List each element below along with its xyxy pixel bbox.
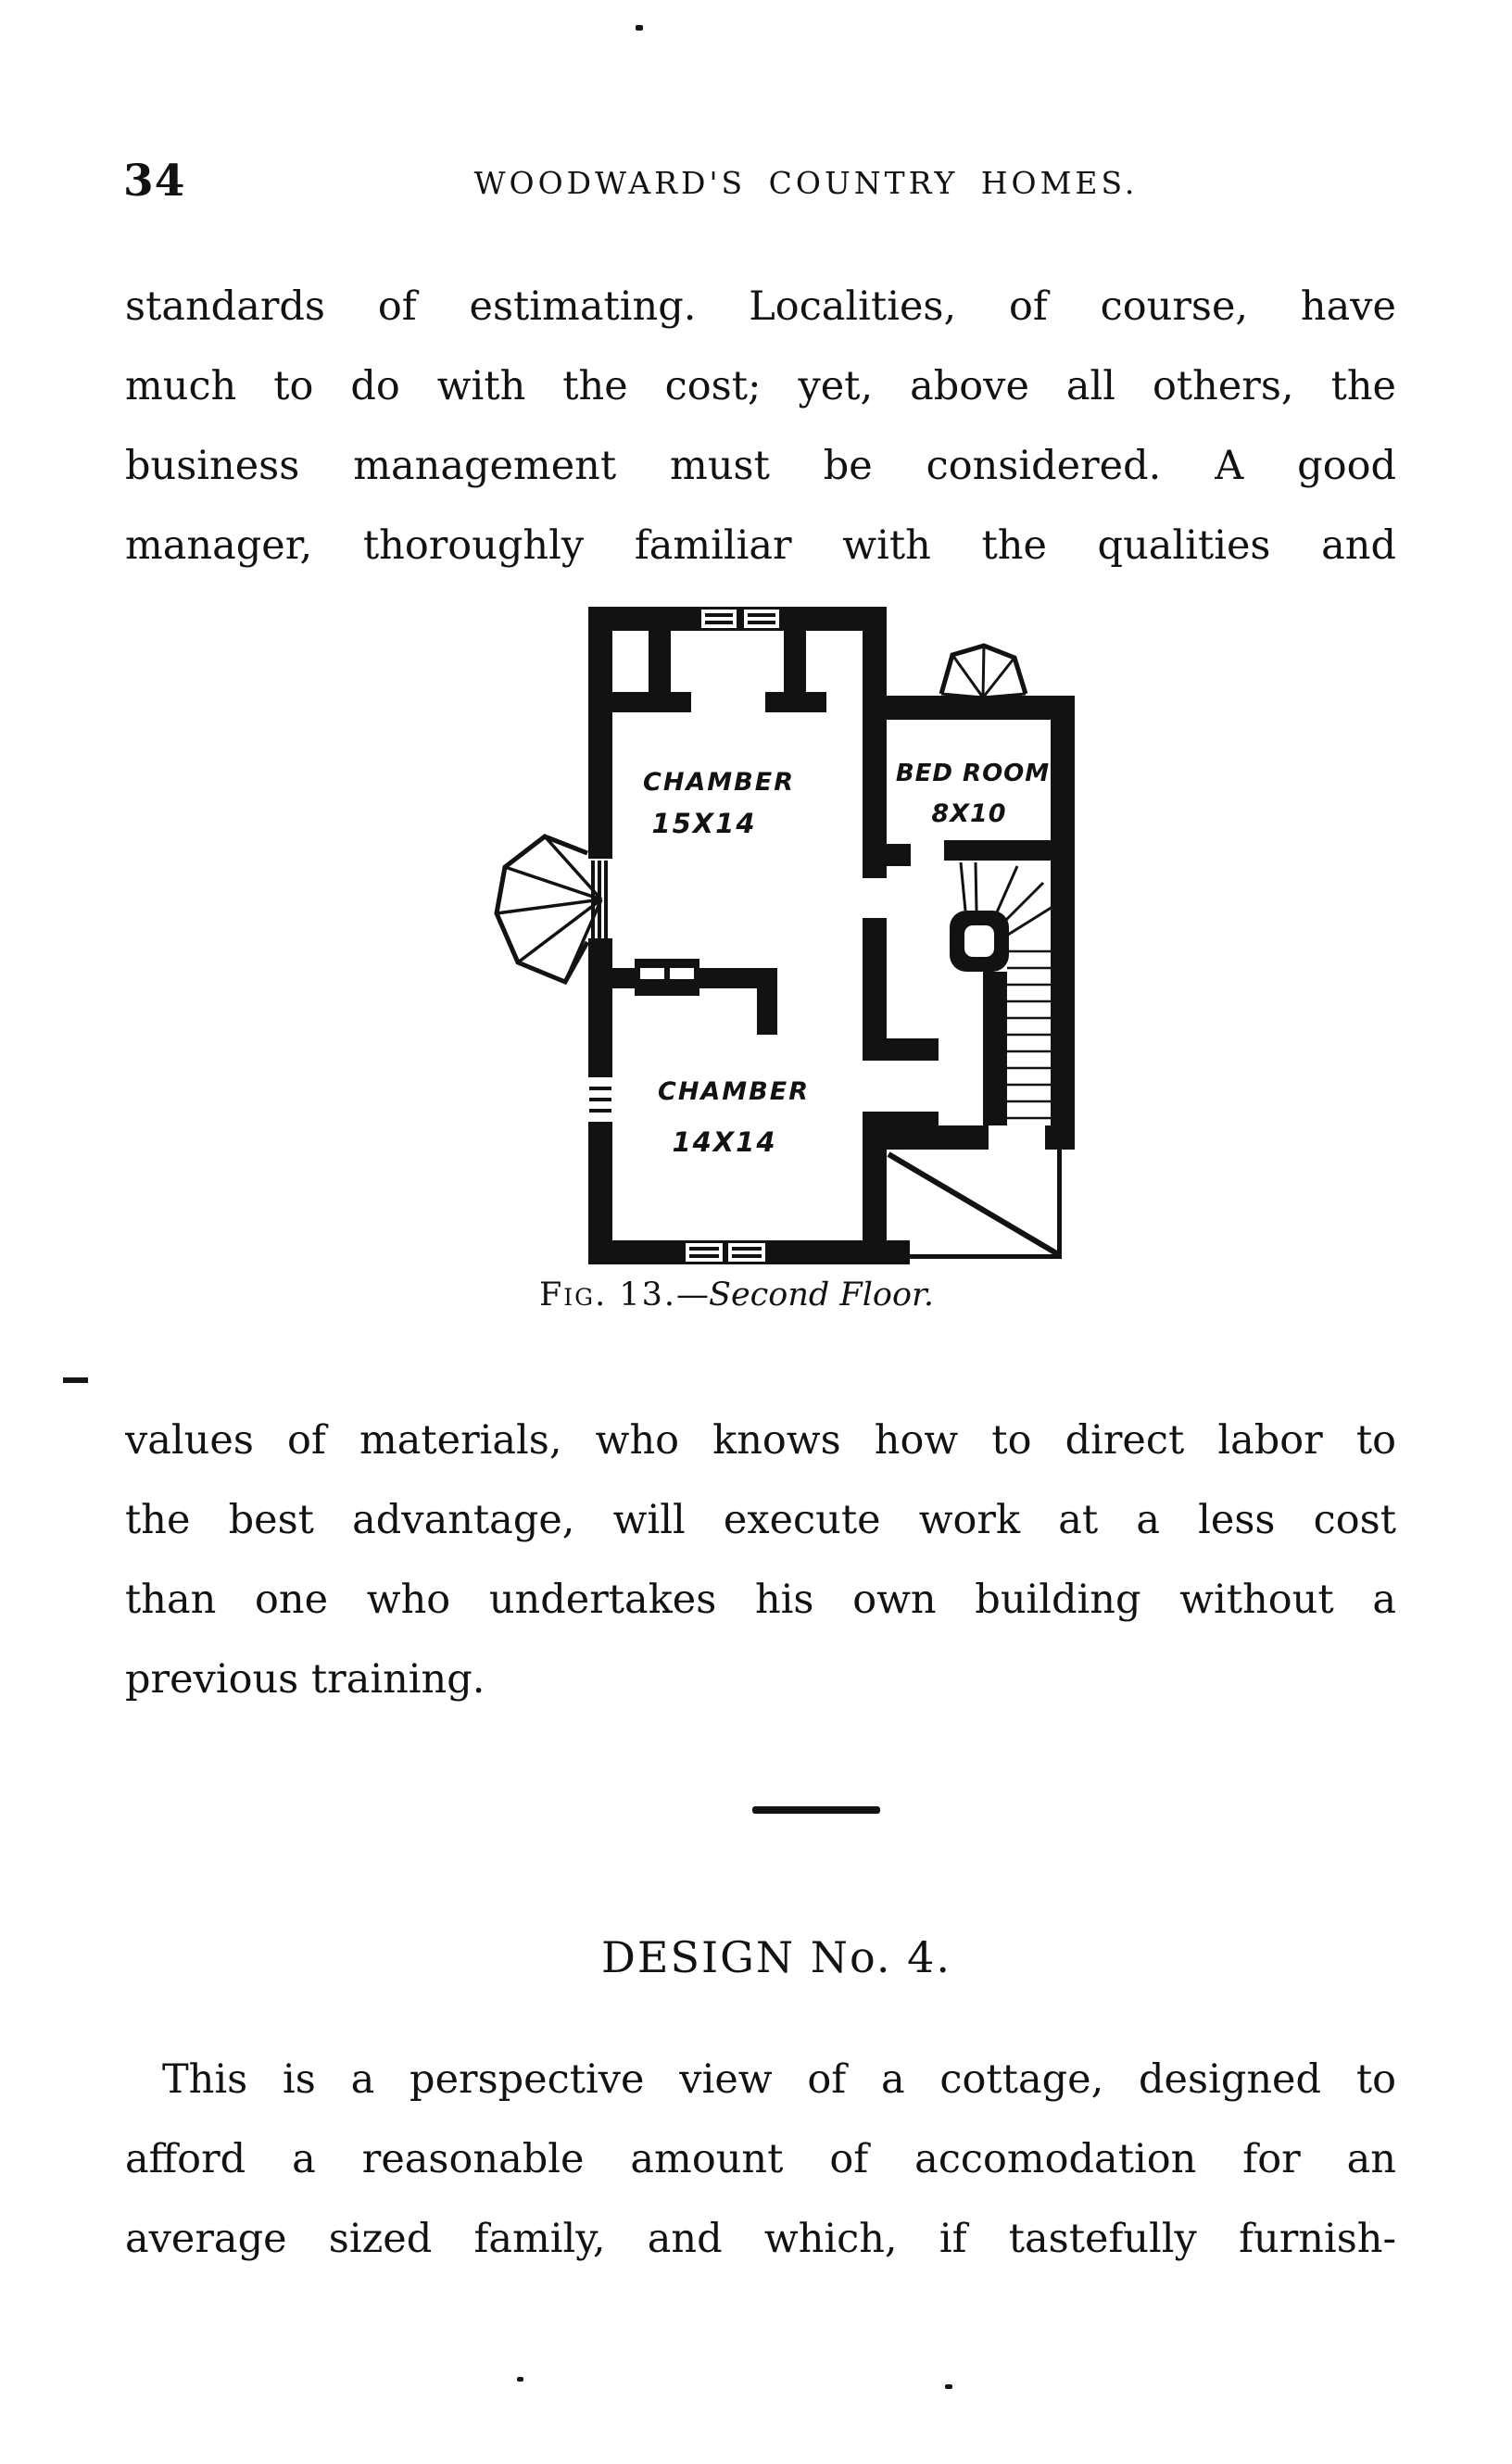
text-line: than one who undertakes his own building…: [125, 1560, 1396, 1640]
text-line: much to do with the cost; yet, above all…: [125, 346, 1396, 426]
room-size-chamber-14x14: 14X14: [672, 1126, 776, 1158]
room-label-bedroom: BED ROOM: [896, 760, 1050, 787]
room-size-bedroom: 8X10: [931, 799, 1006, 828]
room-label-chamber-14x14: CHAMBER: [658, 1077, 810, 1106]
book-page: 34 WOODWARD'S COUNTRY HOMES. standards o…: [0, 0, 1512, 2464]
text-line: afford a reasonable amount of accomodati…: [125, 2119, 1396, 2199]
scan-speck: [517, 2377, 523, 2382]
section-heading: DESIGN No. 4.: [135, 1932, 1417, 1982]
figure-caption-label: Fig. 13.: [539, 1276, 676, 1314]
text-line: average sized family, and which, if tast…: [125, 2199, 1396, 2279]
text-line: manager, thoroughly familiar with the qu…: [125, 506, 1396, 585]
margin-dash-mark: [63, 1377, 88, 1383]
porch-roof-diagonal: [888, 1154, 1058, 1254]
scan-speck: [636, 25, 643, 31]
page-number: 34: [123, 156, 185, 207]
text-line: the best advantage, will execute work at…: [125, 1480, 1396, 1560]
room-size-chamber-15x14: 15X14: [651, 808, 756, 839]
paragraph-2: values of materials, who knows how to di…: [125, 1401, 1396, 1719]
fan-bay-window: [941, 646, 1026, 698]
figure-caption-dash: —: [676, 1276, 709, 1314]
second-floor-plan: CHAMBER 15X14 BED ROOM 8X10 CHAMBER 14X1…: [491, 607, 1075, 1264]
text-line: standards of estimating. Localities, of …: [125, 267, 1396, 346]
text-line: This is a perspective view of a cottage,…: [125, 2040, 1396, 2119]
text-line: business management must be considered. …: [125, 426, 1396, 506]
text-line: values of materials, who knows how to di…: [125, 1401, 1396, 1480]
text-line: previous training.: [125, 1640, 1396, 1719]
paragraph-1: standards of estimating. Localities, of …: [125, 267, 1396, 585]
room-label-chamber-15x14: CHAMBER: [643, 768, 795, 797]
section-divider-rule: [752, 1806, 880, 1814]
figure-caption-title: Second Floor.: [709, 1276, 934, 1314]
floor-plan-figure: CHAMBER 15X14 BED ROOM 8X10 CHAMBER 14X1…: [491, 607, 1075, 1264]
bay-window: [497, 836, 601, 982]
running-header: WOODWARD'S COUNTRY HOMES.: [250, 165, 1362, 201]
figure-caption: Fig. 13.—Second Floor.: [0, 1276, 1473, 1314]
scan-speck: [945, 2384, 952, 2389]
paragraph-3: This is a perspective view of a cottage,…: [125, 2040, 1396, 2279]
